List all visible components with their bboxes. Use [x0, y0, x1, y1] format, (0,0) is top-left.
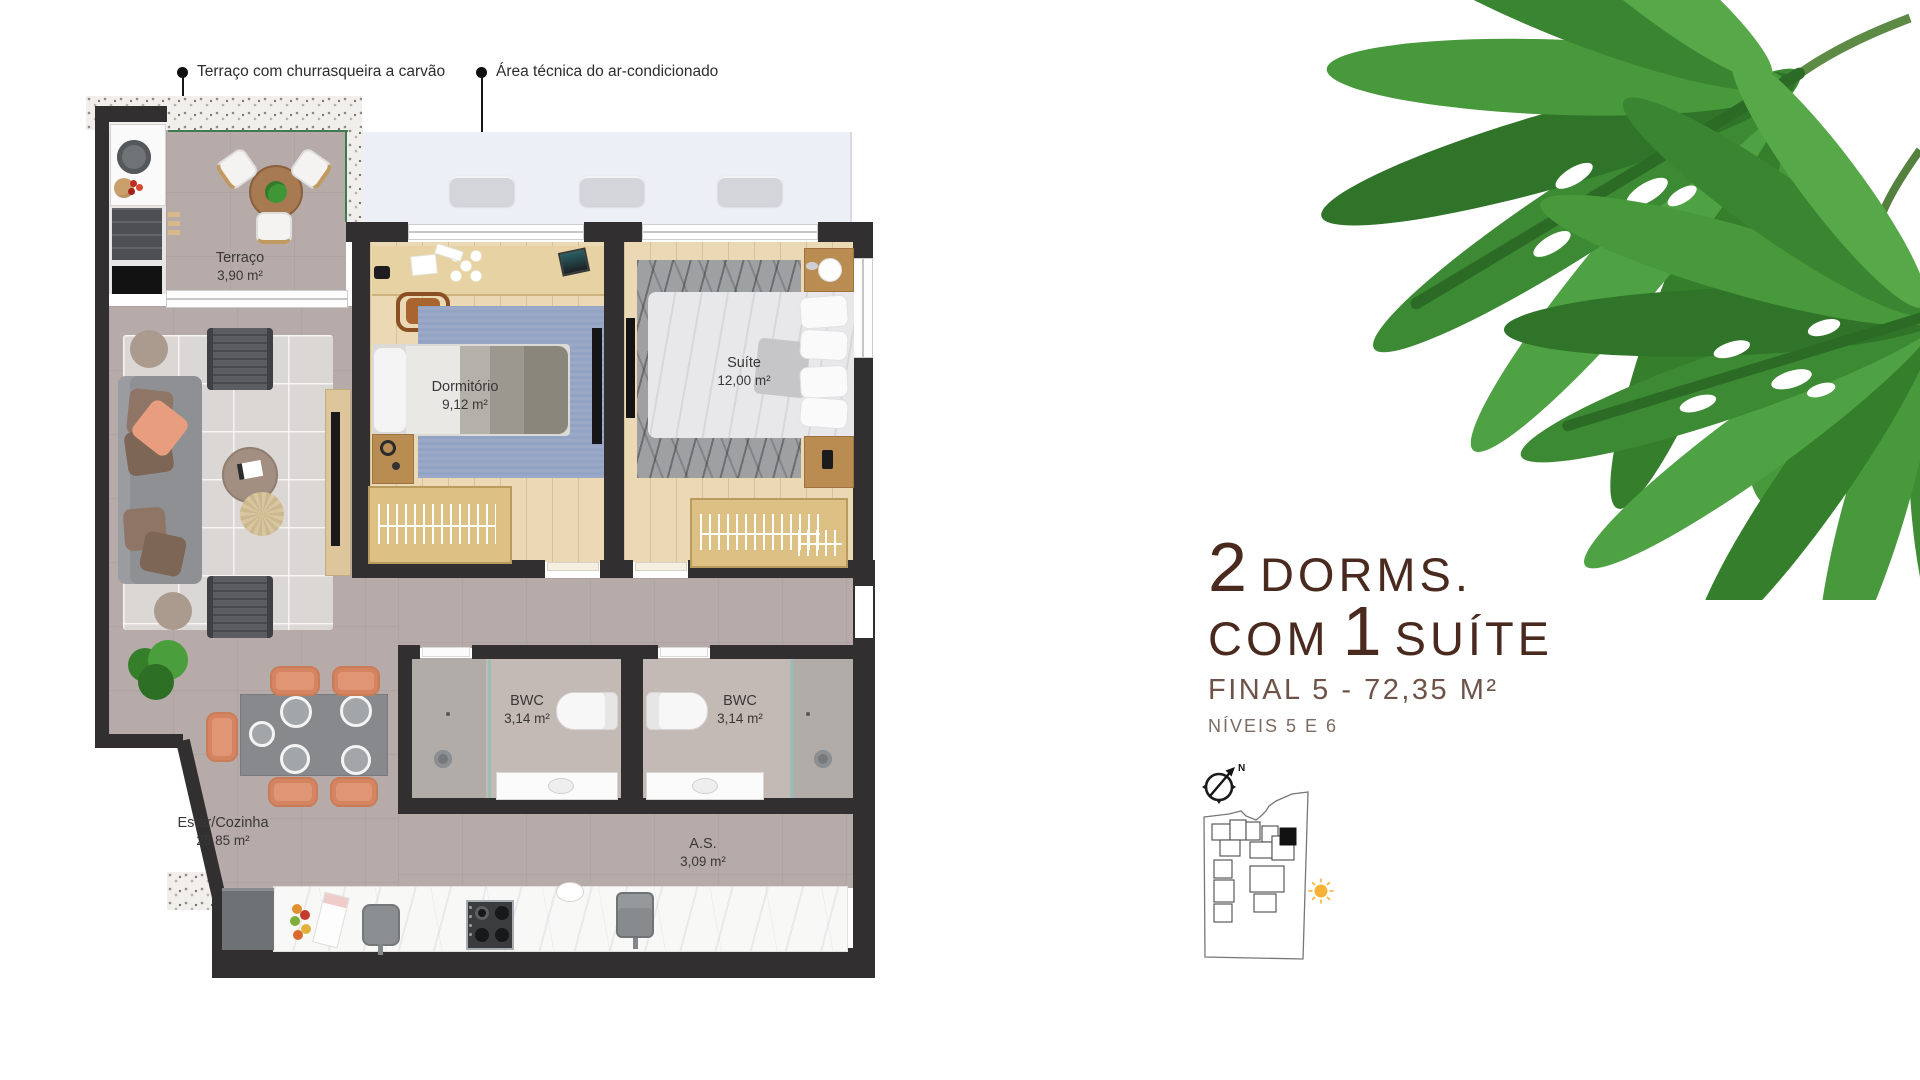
dining-chair: [270, 666, 320, 696]
armchair: [207, 328, 273, 390]
door-suite: [635, 562, 687, 571]
papers: [411, 255, 437, 275]
side-table: [154, 592, 192, 630]
camera: [374, 266, 390, 279]
room-label-estar-cozinha: Estar/Cozinha 25,85 m²: [177, 815, 268, 849]
floor-kitchen-service: [398, 810, 853, 888]
wall-segment: [212, 878, 222, 952]
ac-condenser-unit: [450, 176, 514, 206]
wall-segment: [604, 242, 624, 578]
toilet: [646, 692, 708, 730]
wall-segment: [398, 798, 855, 814]
floor-plan: Terraço 3,90 m² Dormitório 9,12 m² Suíte…: [0, 0, 960, 1080]
wall-segment: [710, 645, 853, 659]
window-suite-side: [853, 258, 873, 358]
window-suite: [642, 224, 818, 240]
wall-segment: [95, 106, 109, 748]
wall-segment: [472, 645, 623, 659]
suite-word: SUÍTE: [1395, 615, 1553, 662]
compass-north-label: N: [1238, 763, 1245, 774]
keyplan-unit-highlight: [1280, 828, 1296, 845]
title-line-2: COM 1 SUÍTE: [1208, 596, 1553, 654]
bed-pillow: [799, 294, 849, 329]
faucet: [633, 938, 638, 949]
kitchen-sink: [362, 904, 400, 946]
phone: [822, 450, 833, 469]
sink: [548, 778, 574, 794]
headphones: [380, 440, 396, 456]
coffee-side-table: [240, 492, 284, 536]
shower-area: [792, 658, 853, 800]
ac-condenser-unit: [580, 176, 644, 206]
cooktop-burners: [475, 906, 489, 920]
wall-segment: [853, 358, 873, 560]
cooktop-knobs: [469, 906, 472, 909]
wall-segment: [584, 222, 642, 242]
dorms-count: 2: [1208, 532, 1247, 602]
door-bwc1: [422, 647, 470, 657]
bed-pillow: [799, 396, 849, 429]
room-label-terraco: Terraço 3,90 m²: [216, 250, 264, 284]
bed-throw: [524, 346, 568, 434]
refrigerator: [222, 888, 274, 950]
shower-head: [814, 750, 832, 768]
com-word: COM: [1208, 615, 1330, 662]
keyplan-diagram: [1190, 780, 1354, 975]
bed-pillow: [799, 329, 849, 361]
bed-pillow: [374, 348, 406, 432]
sliding-door-terrace: [166, 290, 348, 308]
shelf-handle: [168, 221, 180, 226]
wall-segment: [398, 645, 412, 812]
tv-panel: [626, 318, 635, 418]
entrance-door: [855, 586, 873, 638]
food-items: [130, 180, 137, 187]
glass-railing: [345, 130, 347, 222]
charcoal-grill: [117, 140, 151, 174]
faucet: [378, 944, 383, 955]
wall-segment: [643, 645, 658, 659]
gas-cooktop: [466, 900, 514, 950]
plate: [280, 696, 312, 728]
plate: [341, 745, 371, 775]
dining-chair: [332, 666, 380, 696]
wardrobe-hangers: [798, 530, 842, 556]
unit-levels: NÍVEIS 5 E 6: [1208, 716, 1553, 737]
bed-pillow: [799, 365, 849, 399]
monstera-leaf-decoration: [1290, 0, 1920, 600]
dining-chair: [330, 777, 378, 807]
shower-glass: [488, 660, 491, 798]
armchair: [207, 576, 273, 638]
shelf-handle: [168, 212, 180, 217]
laundry-tank: [616, 892, 654, 938]
wall-segment: [600, 560, 633, 578]
dining-chair: [206, 712, 238, 762]
floor-drain: [446, 712, 450, 716]
plate: [280, 744, 310, 774]
door-bwc2: [660, 647, 708, 657]
terrazzo-band-side: [347, 128, 363, 224]
wall-segment: [818, 222, 873, 242]
storage-module: [112, 266, 162, 294]
door-bedroom: [547, 562, 599, 571]
floor-drain: [806, 712, 810, 716]
glass-railing: [168, 130, 348, 132]
shower-area: [412, 658, 486, 800]
plate: [340, 695, 372, 727]
plant: [138, 664, 174, 700]
room-label-as: A.S. 3,09 m²: [680, 836, 726, 870]
wall-segment: [212, 948, 875, 978]
dining-chair: [268, 777, 318, 807]
wall-segment: [95, 734, 183, 748]
unit-final-area: FINAL 5 - 72,35 M²: [1208, 674, 1553, 707]
side-table: [130, 330, 168, 368]
floor-hall: [398, 578, 853, 648]
suite-count: 1: [1343, 596, 1382, 666]
terrazzo-patch: [167, 872, 213, 910]
room-label-suite: Suíte 12,00 m²: [717, 355, 770, 389]
shower-glass: [790, 660, 793, 798]
bottle: [392, 462, 400, 470]
wardrobe-hangers: [378, 504, 496, 544]
room-label-bwc2: BWC 3,14 m²: [717, 693, 763, 727]
grill-prep-module: [112, 208, 162, 260]
ac-condenser-unit: [718, 176, 782, 206]
table-lamp: [818, 258, 842, 282]
sofa-cushion: [138, 530, 187, 578]
page: { "callouts": [ {"label": "Terraço com c…: [0, 0, 1920, 1080]
fruit-bowl: [292, 904, 302, 914]
shelf-handle: [168, 230, 180, 235]
terrace-chair: [256, 212, 292, 244]
plate: [249, 721, 275, 747]
sun-icon: [1309, 879, 1334, 904]
paper-towel-roll: [556, 882, 584, 902]
tv-panel: [331, 412, 340, 546]
shower-head: [434, 750, 452, 768]
wall-segment: [346, 222, 408, 242]
trinket-dish: [806, 262, 818, 270]
sink: [692, 778, 718, 794]
room-label-bwc1: BWC 3,14 m²: [504, 693, 550, 727]
room-label-dormitorio: Dormitório 9,12 m²: [432, 379, 499, 413]
toilet: [556, 692, 618, 730]
window-bedroom: [408, 224, 584, 240]
tv-panel: [592, 328, 602, 444]
wall-segment: [621, 645, 643, 812]
table-plant: [265, 181, 287, 203]
